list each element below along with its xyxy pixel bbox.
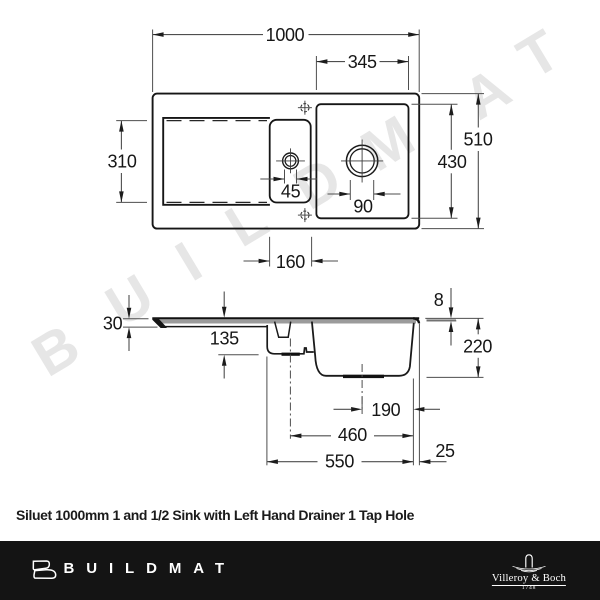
svg-text:25: 25 xyxy=(435,441,455,461)
svg-text:220: 220 xyxy=(463,337,492,357)
svg-text:310: 310 xyxy=(108,152,137,172)
svg-text:30: 30 xyxy=(103,314,123,334)
svg-text:190: 190 xyxy=(371,400,400,420)
svg-text:550: 550 xyxy=(325,451,354,471)
svg-text:160: 160 xyxy=(276,252,305,272)
svg-text:1000: 1000 xyxy=(266,25,305,45)
svg-text:460: 460 xyxy=(338,425,367,445)
svg-text:430: 430 xyxy=(438,152,467,172)
svg-text:510: 510 xyxy=(464,130,493,150)
svg-text:90: 90 xyxy=(353,197,373,217)
svg-text:8: 8 xyxy=(434,290,444,310)
svg-text:135: 135 xyxy=(210,329,239,349)
svg-text:45: 45 xyxy=(281,182,301,202)
svg-text:345: 345 xyxy=(348,52,377,72)
